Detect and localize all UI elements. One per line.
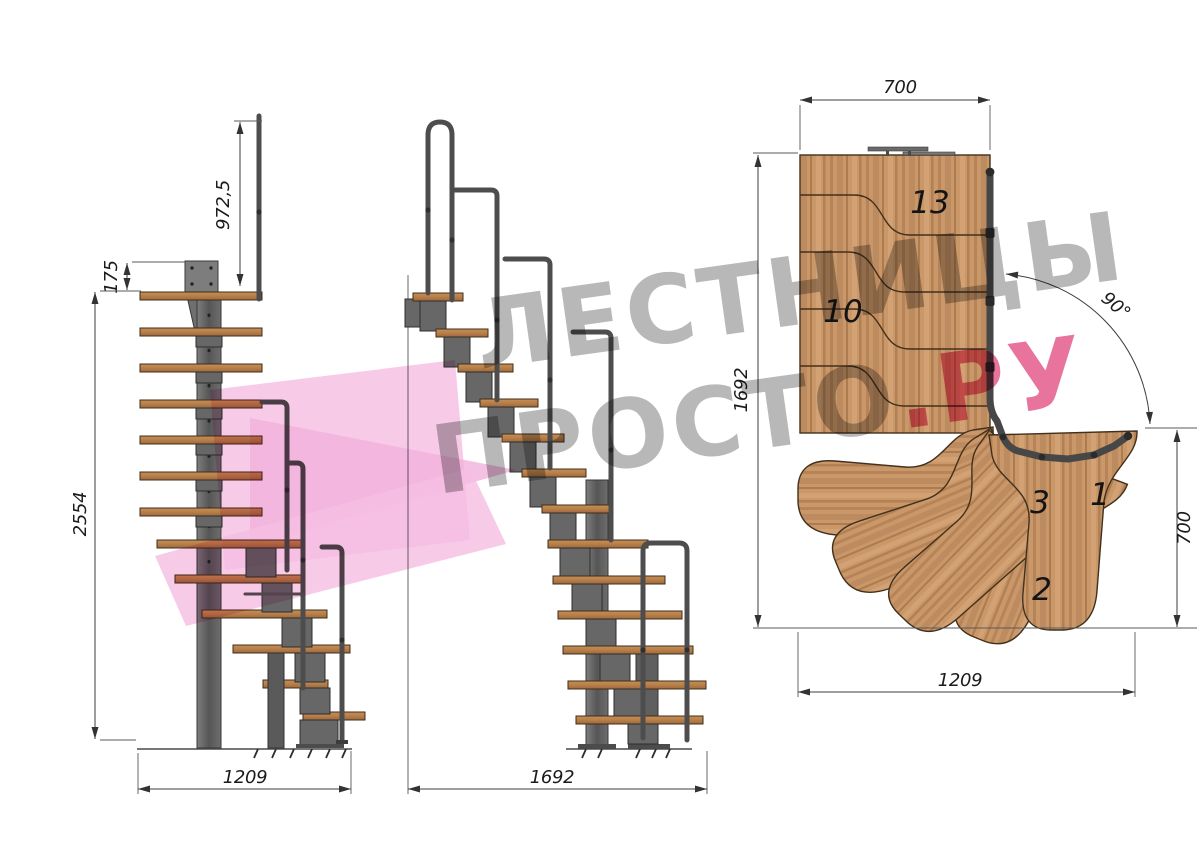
plan-step13-label: 13 [910,185,949,221]
plan-step10-label: 10 [823,294,862,330]
plan-winder-fan [798,427,1137,674]
side-lower-treads [157,540,365,748]
dim-bottom-width-label: 1209 [938,670,983,691]
side-anchor-ticks [254,749,346,758]
side-support-post [268,653,284,748]
dim-flight-length-label: 1692 [731,368,752,413]
wall-plate [185,261,218,292]
plan-step3-label: 3 [1030,485,1050,521]
plan-step1-label: 1 [1090,477,1110,513]
stairs-technical-drawing: 972,5 175 2554 1209 [0,0,1200,849]
front-treads [405,293,706,744]
side-view: 972,5 175 2554 1209 [70,116,365,794]
dim-plate-offset-label: 175 [101,260,122,293]
dim-total-height-label: 2554 [70,492,91,537]
dim-rail-height-label: 972,5 [213,180,234,230]
base-plate [296,744,344,748]
angle-arc [1006,274,1150,424]
stairs-technical-drawing-page: 972,5 175 2554 1209 [0,0,1200,849]
dim-right-width-label: 700 [1174,511,1195,544]
front-dimensions: 1692 [408,751,707,794]
front-rail-joints [425,207,689,652]
front-anchor-ticks [582,749,670,758]
dim-total-width-label: 1692 [530,767,575,788]
plan-view: 13 10 3 1 2 700 [731,77,1197,697]
front-view: 1692 [405,122,707,794]
dim-top-width-label: 700 [883,77,916,98]
dim-base-width-label: 1209 [223,767,268,788]
plan-step2-label: 2 [1032,572,1052,608]
